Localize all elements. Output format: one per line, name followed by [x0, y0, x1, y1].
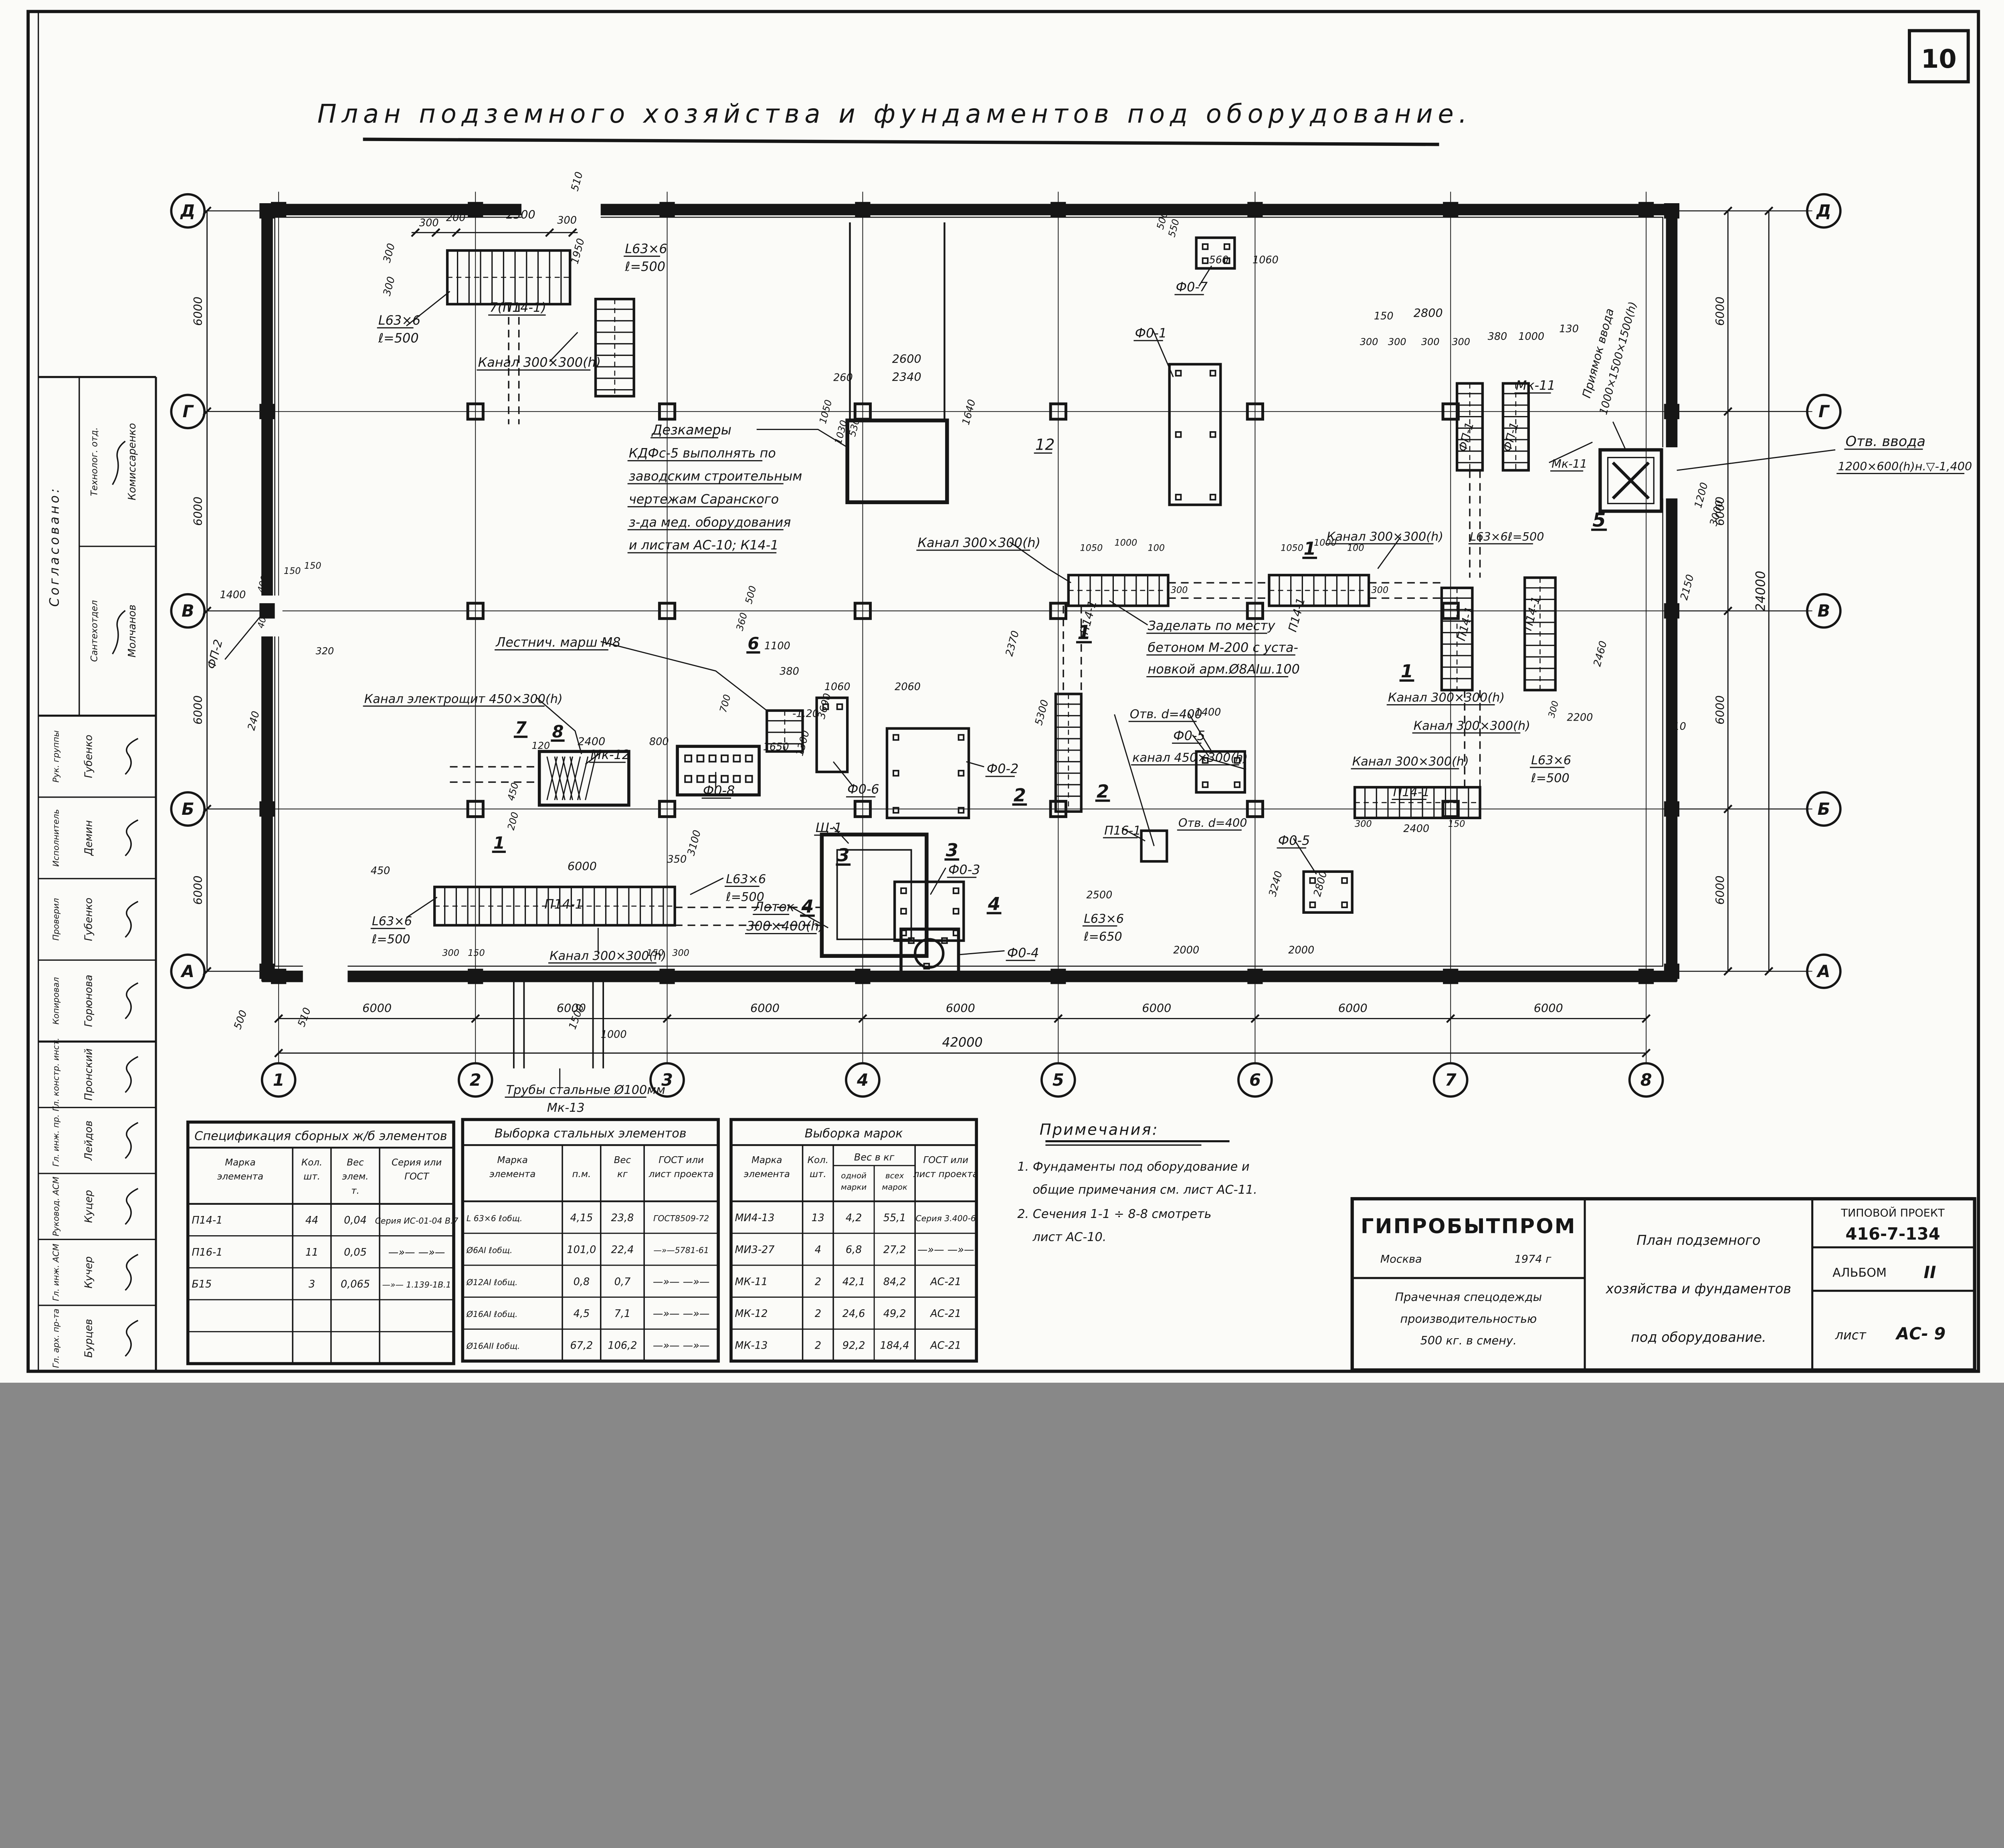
annotation-text: заводским строительным [629, 469, 802, 484]
table-cell: 49,2 [883, 1308, 906, 1320]
annotation-text: 300 [557, 214, 577, 226]
annotation-text: канал 450×300(h) [1132, 751, 1248, 765]
annotation: 380 [780, 666, 799, 678]
annotation: 300 [1452, 336, 1470, 347]
annotation-text: 1400 [1195, 707, 1221, 719]
annotation: 5 [1591, 509, 1607, 531]
annotation-text: 1000 [1518, 331, 1544, 343]
table-cell: —»— 1.139-1В.1 [382, 1280, 451, 1290]
annotation: 150 [1374, 310, 1394, 322]
annotation: Мк-13 [547, 1101, 585, 1115]
annotation: ℓ=650 [1083, 930, 1122, 944]
table-header: шт. [810, 1169, 826, 1179]
annotation: 7(П14-1) [488, 300, 546, 315]
table-cell: 24,6 [842, 1308, 865, 1320]
table-header: Марка [751, 1155, 782, 1165]
annotation-text: 130 [1559, 323, 1579, 335]
table-header: лист проекта [648, 1169, 714, 1179]
annotation: Канал 300×300(h) [1351, 755, 1469, 769]
table-cell: Серия ИС-01-04 В.7 [375, 1216, 459, 1226]
annotation: 100 [1347, 543, 1364, 553]
table-cell: 7,1 [614, 1308, 631, 1320]
table-cell: МИ4-13 [735, 1212, 775, 1224]
table-header: ГОСТ или [659, 1155, 704, 1165]
table-cell: —»— —»— [653, 1308, 710, 1320]
perimeter-column [1638, 202, 1654, 217]
table-cell: 11 [305, 1246, 318, 1258]
table-header: лист проекта [913, 1169, 978, 1179]
annotation-text: и листам АС-10; К14-1 [629, 537, 779, 553]
table-cell: МК-13 [735, 1340, 768, 1352]
table-header: элем. [342, 1171, 368, 1182]
annotation: Ф0-4 [1006, 945, 1039, 960]
annotation-text: L63×6 [1531, 753, 1571, 767]
annotation: 2400 [578, 735, 605, 748]
table-header: Марка [497, 1155, 528, 1165]
project-name: Прачечная спецодежды [1395, 1290, 1542, 1304]
annotation-text: Канал 300×300(h) [1327, 530, 1443, 544]
annotation-text: 300 [1388, 336, 1406, 347]
col-label: 6 [1249, 1070, 1261, 1090]
table-subheader: марки [841, 1183, 867, 1192]
org-year: 1974 г [1515, 1253, 1552, 1266]
sheet-number: 10 [1921, 44, 1957, 74]
table-cell: 92,2 [842, 1340, 865, 1352]
annotation: Канал 300×300(h) [916, 535, 1040, 550]
annotation-text: Ф0-4 [1007, 945, 1039, 960]
annotation: Ф0-7 [1174, 279, 1208, 295]
annotation: L63×6 [377, 313, 421, 328]
annotation-text: 1 [1304, 538, 1316, 559]
table-cell: МИ3-27 [735, 1244, 775, 1256]
signer-role: Руковод. АСМ [51, 1177, 61, 1236]
annotation-text: 2500 [506, 208, 535, 221]
col-label: 2 [470, 1070, 481, 1090]
annotation-text: Заделать по месту [1148, 618, 1276, 633]
signer-role: Сантехотдел [89, 600, 99, 662]
table-cell: 184,4 [880, 1340, 909, 1352]
annotation-text: 2500 [1086, 889, 1112, 901]
signer-name: Куцер [83, 1190, 95, 1223]
note-line: лист АС-10. [1032, 1230, 1107, 1244]
annotation: 130 [1559, 323, 1579, 335]
annotation-text: 4 [801, 896, 814, 917]
annotation-text: 2600 [892, 352, 921, 366]
annotation-text: 3 [837, 845, 850, 866]
annotation: заводским строительным [628, 469, 802, 484]
signer-role: Технолог. отд. [89, 427, 99, 496]
annotation: 2340 [892, 370, 921, 384]
signer-name: Горюнова [83, 975, 95, 1027]
row-label: Г [183, 402, 194, 421]
annotation: Канал электрощит 450×300(h) [363, 692, 563, 706]
signer-role: Копировал [51, 977, 61, 1024]
table-cell: МК-12 [735, 1308, 768, 1320]
table-cell: 0,7 [614, 1276, 631, 1288]
signer-role: Гл. констр. инст. [51, 1038, 61, 1111]
row-label: А [1816, 962, 1830, 981]
annotation: Отв. d=400 [1129, 707, 1202, 721]
perimeter-column [468, 969, 483, 984]
annotation-text: 1000 [601, 1028, 627, 1040]
signer-name: Молчанов [126, 605, 138, 658]
sheet-label: лист [1835, 1327, 1867, 1343]
table-header: Вес [347, 1157, 364, 1168]
annotation: Отв. d=400 [1177, 816, 1247, 830]
annotation: 4 [800, 896, 815, 917]
annotation: Ф0-2 [986, 761, 1019, 776]
annotation: Лестнич. марш М8 [495, 635, 620, 650]
perimeter-column [855, 969, 870, 984]
signer-name: Губенко [83, 735, 95, 778]
annotation-text: 380 [780, 666, 799, 678]
perimeter-column [659, 202, 675, 217]
annotation-text: Мк-11 [1551, 457, 1587, 471]
annotation: и листам АС-10; К14-1 [628, 537, 779, 553]
annotation-text: Ф0-8 [703, 783, 735, 798]
annotation-text: Ф0-6 [847, 782, 879, 797]
annotation: 2500 [1086, 889, 1112, 901]
annotation: 2000 [1173, 944, 1199, 956]
annotation-text: 1 [1401, 661, 1413, 682]
drawing-name: План подземного [1636, 1232, 1760, 1248]
table-cell: 27,2 [883, 1244, 906, 1256]
dim-6000-v: 6000 [191, 695, 205, 725]
annotation: Канал 300×300(h) [1387, 691, 1505, 705]
annotation-text: 1050 [1080, 543, 1103, 553]
annotation-text: 300 [1421, 336, 1440, 347]
annotation: канал 450×300(h) [1131, 751, 1248, 765]
signer-name: Лейдов [83, 1121, 95, 1161]
annotation-text: 5 [1592, 509, 1606, 531]
annotation: Щ-1 [814, 820, 842, 835]
annotation-text: 560 [1209, 254, 1229, 266]
annotation-text: з-да мед. оборудования [629, 515, 791, 530]
annotation: 3 [836, 845, 850, 866]
perimeter-column [659, 969, 675, 984]
annotation: 12 [1034, 436, 1055, 454]
annotation-text: 300 [419, 217, 439, 229]
annotation-text: 1050 [1281, 543, 1303, 553]
signer-role: Гл. инж. пр. [51, 1115, 61, 1167]
table-title: Выборка стальных элементов [495, 1127, 687, 1141]
row-label: Б [182, 800, 194, 819]
annotation-text: ℓ=500 [378, 331, 419, 346]
table-cell: АС-21 [929, 1308, 961, 1320]
annotation: ℓ=500 [1531, 772, 1570, 786]
table-subheader: всех [885, 1171, 904, 1180]
dim-6000-v: 6000 [191, 497, 205, 526]
annotation: 6 [746, 634, 760, 653]
annotation: 3 [945, 840, 960, 860]
row-label: Г [1818, 402, 1830, 421]
table-cell: Ø16АI ℓобщ. [466, 1309, 518, 1319]
table-cell: 55,1 [883, 1212, 906, 1224]
annotation: 8 [551, 722, 564, 741]
table-cell: 2 [815, 1308, 821, 1320]
perimeter-column [1050, 969, 1066, 984]
col-label: 1 [273, 1070, 285, 1090]
annotation-text: Канал 300×300(h) [918, 535, 1041, 550]
annotation-text: чертежам Саранского [629, 491, 779, 507]
annotation: 1000 [1115, 538, 1137, 548]
annotation: 2000 [1288, 944, 1314, 956]
annotation: 1400 [1195, 707, 1221, 719]
signer-role: Гл. инж. АСМ [51, 1244, 61, 1301]
table-cell: 0,8 [574, 1276, 590, 1288]
annotation: Мк-12 [589, 747, 630, 762]
table-cell: 42,1 [842, 1276, 865, 1288]
annotation-text: 150 [304, 561, 321, 571]
table-cell: 67,2 [570, 1340, 593, 1352]
annotation-text: 3 [946, 840, 958, 860]
annotation-text: 300 [672, 948, 689, 958]
annotation: 510 [1667, 721, 1686, 733]
table-cell: Ø16АII ℓобщ. [466, 1341, 520, 1351]
annotation: 2800 [1414, 306, 1443, 320]
table-header: Вес в кг [854, 1151, 895, 1163]
annotation: 2060 [895, 681, 921, 693]
annotation-text: Дезкамеры [651, 422, 731, 438]
perimeter-column [1050, 202, 1066, 217]
table-header: элемента [489, 1169, 535, 1179]
annotation-text: 7 [515, 718, 527, 737]
annotation: Ф0-5 [1172, 728, 1205, 743]
annotation-text: 300 [1171, 585, 1188, 596]
perimeter-column [1247, 202, 1263, 217]
annotation-text: L63×6 [1084, 912, 1124, 926]
annotation: L63×6 [624, 241, 667, 256]
annotation-text: 7(П14-1) [489, 300, 546, 315]
annotation: Отв. ввода [1844, 433, 1925, 450]
annotation-text: 100 [1347, 543, 1364, 553]
table-cell: 0,05 [344, 1246, 367, 1258]
annotation: L63×6 [725, 872, 766, 886]
annotation-text: Лестнич. марш М8 [495, 635, 620, 650]
annotation-text: 2340 [892, 370, 921, 384]
annotation-text: ℓ=500 [372, 932, 410, 946]
annotation: L63×6 [1083, 912, 1124, 926]
annotation: 300 [557, 214, 577, 226]
annotation: 260 [833, 372, 853, 384]
annotation-text: 2 [1097, 781, 1109, 802]
annotation-text: новкой арм.Ø8АIш.100 [1148, 661, 1300, 677]
table-cell: АС-21 [929, 1340, 961, 1352]
annotation-text: Отв. d=400 [1130, 707, 1202, 721]
annotation-text: 6 [747, 634, 759, 653]
annotation: Мк-11 [1515, 378, 1556, 393]
table-cell: 2 [815, 1276, 821, 1288]
table-cell: МК-11 [735, 1276, 768, 1288]
dim-6000: 6000 [362, 1002, 392, 1015]
annotation: 1060 [824, 681, 850, 693]
annotation-text: Канал 300×300(h) [1414, 719, 1530, 733]
dim-6000-v: 6000 [191, 875, 205, 905]
annotation-text: 2200 [1567, 711, 1593, 723]
table-subheader: марок [882, 1183, 907, 1192]
annotation-text: 2400 [1403, 823, 1429, 835]
table-cell: 44 [305, 1214, 318, 1226]
annotation: 150 [1448, 819, 1465, 829]
sheet-code: АС- 9 [1895, 1324, 1945, 1343]
signer-name: Кучер [83, 1256, 95, 1289]
table-cell: 23,8 [611, 1212, 634, 1224]
annotation: 300 [1372, 585, 1389, 596]
table-header: элемента [744, 1169, 790, 1179]
table-cell: 13 [812, 1212, 824, 1224]
annotation-text: 200 [446, 212, 466, 224]
annotation: Ф0-6 [846, 782, 879, 797]
table-cell: Ø6АI ℓобщ. [466, 1246, 513, 1255]
annotation-text: Ф0-7 [1176, 279, 1208, 295]
annotation: 1650 [763, 741, 789, 753]
annotation: 300 [672, 948, 689, 958]
annotation-text: 300 [1372, 585, 1389, 596]
annotation-text: 800 [649, 736, 669, 748]
annotation: 350 [667, 853, 687, 865]
table-cell: 84,2 [883, 1276, 906, 1288]
annotation: чертежам Саранского [628, 491, 779, 507]
dim-6000: 6000 [946, 1002, 975, 1015]
annotation: 560 [1209, 254, 1229, 266]
annotation-text: L63×6 [726, 872, 766, 886]
signer-name: Комиссаренко [126, 423, 138, 501]
col-label: 8 [1640, 1070, 1652, 1090]
annotation-text: 150 [284, 566, 301, 576]
perimeter-column [855, 202, 870, 217]
table-header: ГОСТ или [923, 1155, 968, 1165]
annotation: 1 [492, 833, 506, 852]
annotation: 1050 [1281, 543, 1303, 553]
table-cell: —»— —»— [653, 1340, 710, 1352]
annotation-text: Мк-11 [1516, 378, 1556, 393]
table-cell: Б15 [192, 1278, 212, 1291]
annotation: 1100 [764, 640, 790, 652]
annotation: 1000 [601, 1028, 627, 1040]
annotation-text: 260 [833, 372, 853, 384]
type-number: 416-7-134 [1845, 1224, 1940, 1244]
annotation-text: 380 [1488, 331, 1507, 343]
annotation-text: 2060 [895, 681, 921, 693]
signer-name: Губенко [83, 898, 95, 941]
drawing-title: План подземного хозяйства и фундаментов … [317, 99, 1472, 129]
annotation: 6000 [568, 860, 597, 873]
annotation-text: 2400 [578, 735, 605, 748]
perimeter-column [1638, 969, 1654, 984]
annotation-text: 1 [1077, 622, 1091, 644]
annotation: 2 [1095, 781, 1110, 802]
table-header: ГОСТ [404, 1171, 430, 1182]
annotation: 200 [446, 212, 466, 224]
drawing-name: хозяйства и фундаментов [1606, 1281, 1792, 1297]
annotation-text: П14-1 [1393, 786, 1430, 800]
row-label: А [180, 962, 194, 981]
annotation-text: бетоном М-200 с уста- [1148, 640, 1298, 655]
annotation: 150 [468, 948, 485, 958]
annotation: 1 [1302, 538, 1317, 559]
col-label: 4 [857, 1070, 869, 1090]
annotation-text: 120 [532, 740, 550, 751]
annotation: -1,20 [792, 708, 819, 720]
annotation: 800 [649, 736, 669, 748]
annotation: Трубы стальные Ø100мм [505, 1083, 665, 1097]
drawing-canvas: 10 6000600060006000600060006000420006000… [0, 0, 2004, 1383]
annotation-text: ℓ=500 [725, 890, 764, 904]
annotation: ℓ=500 [725, 890, 764, 904]
annotation-text: 150 [1374, 310, 1394, 322]
table-cell: —»—5781-61 [653, 1246, 709, 1255]
annotation-text: 2000 [1173, 944, 1199, 956]
annotation: 450 [371, 865, 390, 877]
project-name: 500 кг. в смену. [1420, 1334, 1517, 1347]
annotation: бетоном М-200 с уста- [1146, 640, 1298, 655]
annotation: П14-1 [1392, 786, 1430, 800]
table-cell: 4,2 [846, 1212, 862, 1224]
annotation-text: П16-1 [1104, 824, 1141, 838]
annotation-text: 1 [493, 833, 505, 852]
annotation: 1200×600(h)н.▽-1,400 [1836, 459, 1972, 473]
type-label: ТИПОВОЙ ПРОЕКТ [1840, 1207, 1945, 1220]
annotation-text: 150 [647, 948, 664, 958]
table-header: Вес [614, 1155, 631, 1165]
annotation-text: Ф0-1 [1135, 325, 1167, 341]
annotation: 150 [647, 948, 664, 958]
annotation-text: 1200×600(h)н.▽-1,400 [1838, 459, 1972, 473]
annotation: Канал 300×300(h) [1412, 719, 1530, 733]
annotation: 300 [442, 948, 459, 958]
annotation: 2 [1012, 785, 1027, 806]
table-header: кг [617, 1169, 628, 1179]
annotation-text: 2800 [1414, 306, 1443, 320]
table-header: Кол. [808, 1155, 828, 1165]
table-cell: АС-21 [929, 1276, 961, 1288]
annotation: 7 [514, 718, 527, 737]
dim-6000: 6000 [1338, 1002, 1368, 1015]
annotation: 2500 [506, 208, 535, 221]
perimeter-column [468, 202, 483, 217]
annotation-text: 300 [1360, 336, 1378, 347]
annotation: 1060 [1252, 254, 1279, 266]
col-label: 5 [1053, 1070, 1064, 1090]
annotation: Ф0-1 [1133, 325, 1167, 341]
annotation: 320 [316, 646, 334, 657]
annotation-text: Щ-1 [815, 820, 842, 835]
table-subheader: одной [841, 1171, 867, 1180]
annotation-text: 350 [667, 853, 687, 865]
signer-role: Проверил [51, 898, 61, 941]
annotation-text: 300×400(h) [746, 918, 824, 933]
annotation: Заделать по месту [1146, 618, 1275, 633]
blueprint-sheet: 10 6000600060006000600060006000420006000… [0, 0, 2004, 1383]
annotation-text: 1100 [764, 640, 790, 652]
col-label: 7 [1445, 1070, 1457, 1090]
table-cell: —»— —»— [917, 1244, 974, 1256]
annotation-text: L63×6ℓ=500 [1470, 530, 1544, 543]
annotation-text: ℓ=650 [1083, 930, 1122, 944]
table-cell: 4 [815, 1244, 821, 1256]
note-line: 2. Сечения 1-1 ÷ 8-8 смотреть [1017, 1207, 1211, 1221]
album-number: II [1924, 1263, 1936, 1282]
dim-6000: 6000 [1534, 1002, 1563, 1015]
table-header: Кол. [301, 1157, 322, 1168]
dim-42000: 42000 [942, 1035, 982, 1050]
table-cell: ГОСТ8509-72 [653, 1214, 709, 1223]
annotation: 300 [1421, 336, 1440, 347]
row-label: Д [1816, 201, 1831, 220]
table-cell: 0,065 [341, 1278, 370, 1291]
dim-24000: 24000 [1753, 571, 1768, 611]
annotation-text: ℓ=500 [1531, 772, 1570, 786]
